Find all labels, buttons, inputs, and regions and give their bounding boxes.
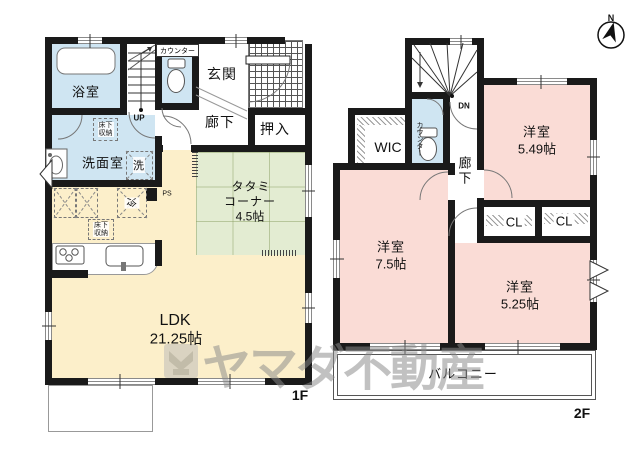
wall — [248, 108, 312, 115]
pantry-box — [54, 188, 76, 218]
wall — [333, 163, 448, 170]
terrace-outline — [48, 385, 153, 432]
wall — [405, 92, 450, 99]
staircase-2f — [412, 43, 477, 98]
wall — [191, 145, 312, 152]
accordion-door — [192, 152, 198, 178]
wall — [590, 78, 597, 350]
room-label-balcony: バルコニー — [428, 364, 498, 383]
window — [517, 78, 567, 85]
floor-label-2f: 2F — [574, 405, 590, 421]
wall — [443, 92, 450, 168]
pipe-space-label: PS — [162, 191, 171, 198]
room-label-entrance: 玄関 — [207, 64, 237, 84]
room-label-western-c: 5.25帖 — [501, 294, 539, 313]
wall — [120, 37, 127, 115]
wall — [45, 180, 162, 187]
room-label-corridor: 廊下 — [455, 156, 474, 186]
underfloor-storage-label: 床下 — [93, 222, 109, 230]
shutter-track — [262, 250, 298, 256]
wall — [448, 200, 455, 350]
wall — [52, 270, 88, 278]
underfloor-storage-label: 収納 — [98, 130, 114, 138]
underfloor-storage-label: 床下 — [98, 122, 114, 130]
wall — [248, 115, 255, 147]
counter-label: カウンター — [414, 122, 424, 157]
wic-hatch — [357, 117, 405, 125]
fridge-label: 冷 — [125, 198, 140, 209]
wic-hatch — [357, 125, 365, 163]
window — [305, 293, 312, 323]
wall — [348, 108, 412, 115]
stairs-down-label: DN — [458, 102, 470, 111]
underfloor-storage-box: 床下 収納 — [88, 219, 114, 240]
closet-label: CL — [504, 215, 525, 230]
wall — [155, 240, 162, 266]
washer-label: 洗 — [133, 157, 145, 173]
underfloor-storage-box: 床下 収納 — [93, 118, 118, 141]
closet-label: CL — [554, 214, 575, 229]
window — [225, 37, 247, 44]
wall — [45, 108, 127, 115]
room-label-western-a: 5.49帖 — [518, 139, 556, 158]
wall — [348, 108, 355, 170]
underfloor-storage-label: 収納 — [93, 230, 109, 238]
staircase-1f — [128, 45, 155, 112]
compass-icon — [598, 21, 624, 48]
wall — [405, 38, 412, 168]
wall — [477, 85, 484, 170]
room-label-corridor: 廊下 — [205, 112, 235, 132]
room-label-tatami: 4.5帖 — [236, 208, 265, 225]
floor-label-1f: 1F — [292, 387, 308, 403]
window — [333, 240, 340, 278]
window — [45, 312, 52, 340]
window — [78, 37, 102, 44]
compass-north-label: N — [608, 13, 615, 23]
counter-label: カウンター — [160, 46, 195, 56]
room-label-ldk: 21.25帖 — [150, 328, 203, 349]
stairs-up-label: UP — [133, 114, 144, 123]
window — [370, 343, 440, 350]
window — [590, 140, 597, 175]
wall — [45, 378, 312, 385]
counter-label-box: カウンター — [156, 44, 199, 57]
entrance-porch-tile — [248, 40, 303, 108]
window — [88, 378, 155, 385]
window — [305, 165, 312, 217]
room-label-western-b: 7.5帖 — [375, 254, 406, 273]
window — [198, 378, 265, 385]
wall — [477, 236, 597, 243]
room-label-bathroom: 浴室 — [72, 82, 100, 101]
window — [590, 260, 597, 302]
room-label-oshiire: 押入 — [260, 119, 290, 139]
wall — [155, 145, 163, 152]
pantry-box — [76, 188, 98, 218]
floor-plan: 床下 収納 床下 収納 カウンター 浴室 洗面室 玄関 廊下 押入 タタミ コー… — [0, 0, 640, 469]
room-label-washroom: 洗面室 — [82, 153, 124, 172]
wall — [155, 103, 199, 110]
window — [485, 343, 560, 350]
room-label-wic: WIC — [374, 139, 401, 155]
window — [450, 38, 472, 45]
pipe-space-box — [146, 188, 157, 201]
